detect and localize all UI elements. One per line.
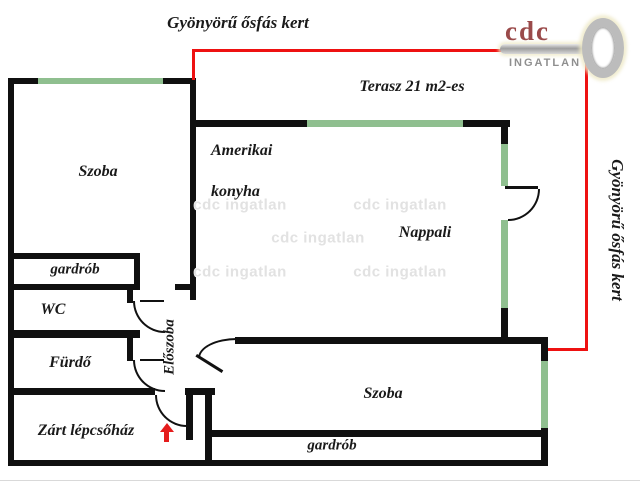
watermark: cdc ingatlan xyxy=(353,197,447,214)
wall-furdo-right xyxy=(127,338,133,361)
room-label-kitchen-line2: konyha xyxy=(211,183,260,201)
wall-szoba2-left xyxy=(205,395,212,460)
window-szoba2-right xyxy=(541,361,548,428)
watermark: cdc ingatlan xyxy=(353,264,447,281)
wall-corridor-top-stub xyxy=(175,284,196,290)
wall-gardrob-top xyxy=(8,253,140,259)
right-garden-title: Gyönyörű ősfás kert xyxy=(607,159,627,301)
terrace-door-arc xyxy=(508,189,540,221)
room-label-nappali: Nappali xyxy=(399,224,451,242)
room-label-wc: WC xyxy=(41,301,66,319)
terrace-line-bottom xyxy=(548,348,588,351)
floor-plan: cdc ingatlan cdc ingatlan cdc ingatlan c… xyxy=(0,0,640,481)
room-label-gardrob-bottom: gardrób xyxy=(307,438,356,455)
wall-wc-bottom xyxy=(8,330,140,338)
room-label-szoba-top: Szoba xyxy=(78,163,117,181)
watermark: cdc ingatlan xyxy=(271,230,365,247)
room-label-stairwell: Zárt lépcsőház xyxy=(38,422,134,440)
room-label-gardrob-left: gardrób xyxy=(50,262,99,279)
terrace-label: Terasz 21 m2-es xyxy=(359,78,464,96)
wall-corridor-right-lower xyxy=(186,395,193,440)
stairs-arrow-shaft xyxy=(164,431,169,442)
wall-nappali-right-upper xyxy=(501,120,508,144)
wall-outer-bottom xyxy=(8,460,548,466)
wc-door-arc xyxy=(133,301,165,333)
wall-gardrob2-top xyxy=(205,430,548,437)
terrace-line-left-stub xyxy=(192,49,195,80)
wall-furdo-bottom xyxy=(8,388,155,395)
wall-entry-jamb xyxy=(185,388,215,395)
terrace-line-right xyxy=(585,49,588,351)
room-label-kitchen-line1: Amerikai xyxy=(211,142,272,160)
key-icon-ring xyxy=(582,18,624,78)
window-nappali-right-upper xyxy=(501,144,508,186)
szoba2-door-arc xyxy=(198,338,237,358)
wall-outer-left xyxy=(8,78,14,466)
wall-szoba2-right-upper xyxy=(541,337,548,361)
room-label-szoba-bottom: Szoba xyxy=(363,385,402,403)
wall-wc-top xyxy=(8,284,140,290)
window-szoba-top xyxy=(38,78,163,84)
window-nappali-top xyxy=(307,120,463,127)
wall-szoba2-top xyxy=(235,337,548,344)
window-nappali-right-lower xyxy=(501,220,508,308)
room-label-furdo: Fürdő xyxy=(49,354,91,372)
top-garden-title: Gyönyörű ősfás kert xyxy=(167,13,309,33)
watermark: cdc ingatlan xyxy=(193,264,287,281)
logo-brand: cdc xyxy=(505,18,550,45)
room-label-eloszoba: Előszoba xyxy=(162,319,179,375)
logo-subtitle: INGATLAN xyxy=(509,57,581,69)
